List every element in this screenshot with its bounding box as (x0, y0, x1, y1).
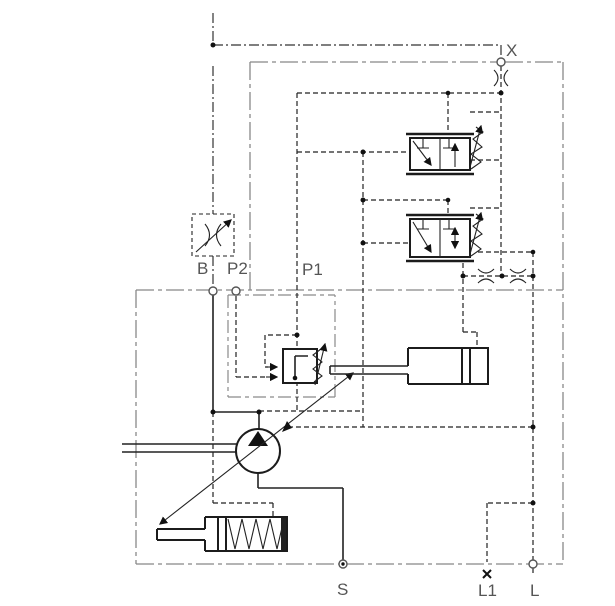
pilot-valve-2-icon (406, 213, 483, 261)
port-x (497, 58, 505, 66)
label-port-s: S (337, 580, 348, 599)
schematic-canvas: X B P2 P1 S L1 L (0, 0, 615, 606)
bias-cylinder-icon (157, 517, 287, 551)
enclosure-boundary (136, 62, 563, 564)
label-port-l1: L1 (478, 581, 497, 600)
port-l1-plug-icon (483, 570, 491, 578)
feedback-tap-arrow (282, 421, 292, 432)
compensator-block-boundary (228, 295, 335, 397)
port-b (209, 287, 217, 295)
label-port-x: X (506, 41, 517, 60)
label-port-l: L (530, 581, 539, 600)
compensator-valve-icon (266, 344, 325, 385)
label-port-b: B (197, 259, 208, 278)
port-p2 (232, 287, 240, 295)
label-port-p2: P2 (227, 259, 248, 278)
port-l (529, 560, 537, 568)
hydraulic-circuit-diagram: X B P2 P1 S L1 L (0, 0, 615, 606)
port-circles (209, 58, 537, 578)
label-port-p1: P1 (302, 260, 323, 279)
pilot-valve-1-icon (406, 126, 483, 174)
stroking-arrow (160, 373, 353, 524)
adjustable-orifice-icon (192, 214, 234, 256)
drive-shaft (122, 444, 237, 452)
control-cylinder-icon (330, 348, 488, 384)
pilot-lines (213, 66, 533, 576)
